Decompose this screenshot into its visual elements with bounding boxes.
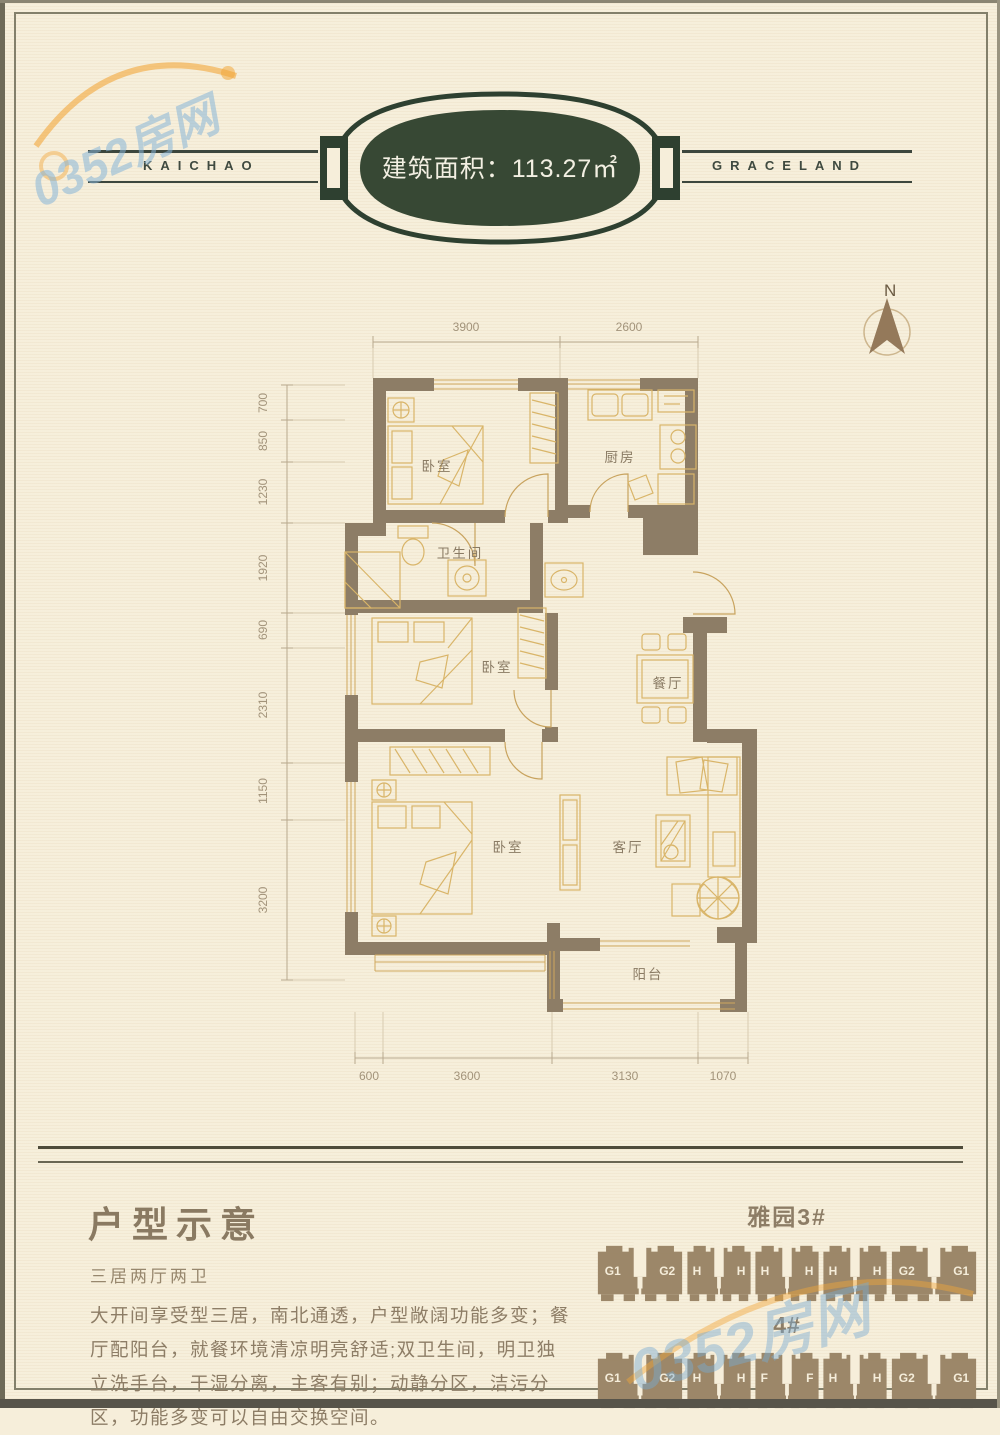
building-title: 雅园3# — [596, 1198, 978, 1232]
unit-label: F — [761, 1371, 768, 1385]
unit-label: G2 — [899, 1371, 915, 1385]
building-row-3: G1G2 HH HH HH G2G1 — [596, 1242, 978, 1304]
dim-bottom-4: 1070 — [710, 1069, 737, 1083]
room-label-living: 客厅 — [613, 839, 644, 855]
unit-label: H — [737, 1264, 746, 1278]
unit-label: G1 — [953, 1371, 969, 1385]
unit-label: H — [829, 1371, 838, 1385]
unit-label: G1 — [605, 1371, 621, 1385]
header-rule-right-bottom — [682, 181, 912, 183]
unit-label: H — [693, 1264, 702, 1278]
unit-label: G1 — [605, 1264, 621, 1278]
building-block: HH — [754, 1242, 820, 1304]
unit-label: H — [761, 1264, 770, 1278]
dim-left-8: 3200 — [256, 886, 270, 913]
building-key-panel: 雅园3# G1G2 HH HH HH G2G1 4# G1G2 HH FF HH… — [596, 1198, 978, 1411]
dim-left-3: 1230 — [256, 478, 270, 505]
unit-label: G1 — [953, 1264, 969, 1278]
dim-bottom-2: 3600 — [454, 1069, 481, 1083]
building-row2-label: 4# — [596, 1312, 978, 1339]
unit-label: H — [693, 1371, 702, 1385]
dim-left-7: 1150 — [256, 778, 270, 804]
unit-label: G2 — [899, 1264, 915, 1278]
dim-left-5: 690 — [256, 620, 270, 640]
dim-left-1: 700 — [256, 393, 270, 413]
dim-bottom-1: 600 — [359, 1069, 379, 1083]
description-body: 大开间享受型三居，南北通透，户型敞阔功能多变；餐厅配阳台，就餐环境清凉明亮舒适;… — [90, 1299, 574, 1435]
building-block: G2G1 — [890, 1242, 978, 1304]
header-rule-left-bottom — [88, 181, 318, 183]
dim-top-1: 3900 — [453, 320, 480, 334]
dim-left-2: 850 — [256, 431, 270, 451]
building-block: HH — [822, 1242, 888, 1304]
dim-left-4: 1920 — [256, 554, 270, 581]
dim-bottom-3: 3130 — [612, 1069, 639, 1083]
brand-kaichao: KAICHAO — [143, 158, 260, 173]
unit-label: G2 — [659, 1264, 675, 1278]
badge-tab-left-notch — [327, 148, 340, 188]
unit-label: F — [806, 1371, 813, 1385]
floorplan: 3900 2600 700 850 1230 1920 690 2310 115… — [230, 290, 800, 1110]
area-badge: 建筑面积：113.27㎡ — [320, 78, 680, 258]
unit-label: H — [829, 1264, 838, 1278]
badge-tab-right-notch — [660, 148, 673, 188]
room-label-bedroom2: 卧室 — [482, 659, 513, 675]
unit-label: H — [805, 1264, 814, 1278]
compass: N — [850, 270, 930, 370]
description-subtitle: 三居两厅两卫 — [90, 1262, 574, 1287]
brand-graceland: GRACELAND — [712, 158, 867, 173]
separator-line-thin — [38, 1161, 963, 1163]
room-label-bedroom3: 卧室 — [493, 839, 524, 855]
north-arrow-icon — [869, 298, 905, 354]
room-label-bathroom: 卫生间 — [437, 546, 484, 561]
unit-label: H — [873, 1371, 882, 1385]
building-block: HH — [686, 1242, 752, 1304]
unit-label: H — [873, 1264, 882, 1278]
description-title: 户型示意 — [88, 1196, 574, 1248]
scan-edge-bottom — [0, 1399, 1000, 1408]
flyer-page: { "watermark": { "text": "0352房网" }, "he… — [0, 0, 1000, 1408]
dim-left-6: 2310 — [256, 691, 270, 718]
separator-line-thick — [38, 1146, 963, 1149]
building-block: G1G2 — [596, 1242, 684, 1304]
room-label-kitchen: 厨房 — [605, 450, 636, 465]
furniture — [345, 390, 740, 936]
compass-label: N — [884, 281, 896, 300]
room-label-balcony: 阳台 — [633, 967, 664, 982]
scan-edge-left — [0, 0, 5, 1408]
unit-label: H — [737, 1371, 746, 1385]
scan-edge-top — [0, 0, 1000, 3]
unit-label: G2 — [659, 1371, 675, 1385]
header-rule-left-top — [88, 150, 318, 153]
area-label: 建筑面积：113.27㎡ — [382, 155, 619, 183]
room-label-bedroom1: 卧室 — [422, 458, 453, 474]
header-rule-right-top — [682, 150, 912, 153]
room-label-dining: 餐厅 — [653, 676, 684, 691]
dim-top-2: 2600 — [616, 320, 643, 334]
